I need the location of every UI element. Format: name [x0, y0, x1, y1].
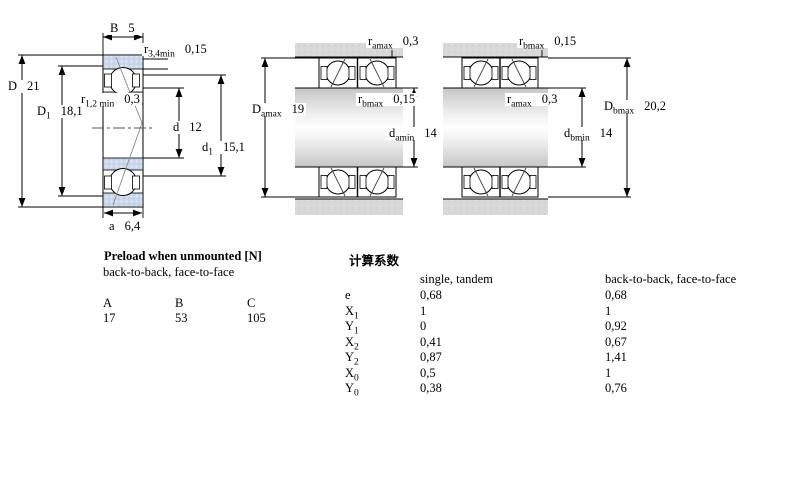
factor-row-Y0: Y00,380,76	[345, 381, 765, 397]
preload-value-B: 53	[175, 311, 188, 326]
factor-row-X0: X00,51	[345, 366, 765, 382]
preload-value-A: 17	[103, 311, 116, 326]
dim-label-B: B5	[108, 22, 137, 35]
dim-label-ramax-mid: ramax0,3	[505, 93, 559, 106]
dim-label-ramax-top: ramax0,3	[366, 35, 420, 48]
preload-value-C: 105	[247, 311, 266, 326]
dim-label-d1: d115,1	[200, 141, 247, 154]
dim-label-rbmax-mid: rbmax0,15	[356, 93, 417, 106]
factor-row-e: e0,680,68	[345, 288, 765, 304]
dim-label-rbmax-top: rbmax0,15	[517, 35, 578, 48]
dim-label-D1: D118,1	[35, 105, 85, 118]
preload-title: Preload when unmounted [N]	[104, 249, 262, 264]
dim-label-d: d12	[171, 121, 204, 134]
factor-row-X1: X111	[345, 304, 765, 320]
preload-col-A: A	[103, 296, 112, 311]
dim-label-dbmin: dbmin14	[562, 127, 614, 140]
dim-label-r12min: r1,2 min0,3	[79, 93, 142, 106]
preload-col-B: B	[175, 296, 183, 311]
factor-row-Y1: Y100,92	[345, 319, 765, 335]
dim-label-r34min: r3,4min0,15	[142, 43, 209, 56]
factors-rows: e0,680,68 X111 Y100,92 X20,410,67 Y20,87…	[345, 288, 765, 397]
preload-subtitle: back-to-back, face-to-face	[103, 265, 234, 280]
dim-label-Damax: Damax19	[250, 103, 306, 116]
dim-label-a: a6,4	[107, 220, 142, 233]
dim-label-damin: damin14	[387, 127, 439, 140]
factor-row-Y2: Y20,871,41	[345, 350, 765, 366]
preload-col-C: C	[247, 296, 255, 311]
factors-title: 计算系数	[349, 250, 399, 269]
dim-label-Dbmax: Dbmax20,2	[602, 100, 668, 113]
factors-col2-header: back-to-back, face-to-face	[605, 272, 736, 287]
bearing-datasheet-page: B5 r3,4min0,15 D21 r1,2 min0,3 D118,1 d1…	[0, 0, 800, 500]
dim-label-D: D21	[6, 80, 42, 93]
factor-row-X2: X20,410,67	[345, 335, 765, 351]
factors-col1-header: single, tandem	[420, 272, 493, 287]
